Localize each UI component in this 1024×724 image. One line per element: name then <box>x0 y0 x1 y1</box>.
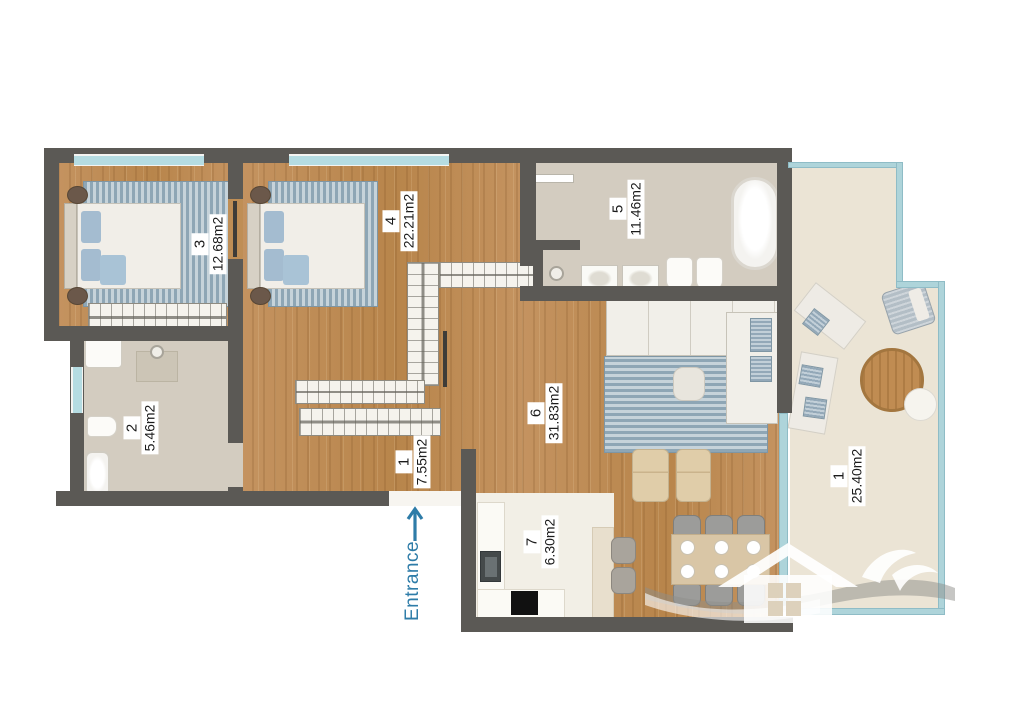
room-area: 7.55m2 <box>414 436 431 489</box>
sink-basin <box>485 557 497 577</box>
wall-bottom-kitchen <box>461 617 793 632</box>
wall-right-living <box>777 148 792 413</box>
floor-plan: 312.68m2 422.21m2 511.46m2 25.46m2 17.55… <box>0 0 1024 724</box>
bed-blanket <box>100 255 126 285</box>
nightstand <box>67 186 88 204</box>
entrance-label: Entrance <box>400 540 426 622</box>
entrance-arrow-icon <box>404 505 426 543</box>
coffee-table <box>673 367 705 401</box>
bed-bedroom-4 <box>247 203 365 289</box>
wall-bottom-left <box>56 491 389 506</box>
bed-pillow <box>81 211 101 243</box>
bed-headboard <box>64 203 77 289</box>
room-area: 22.21m2 <box>401 191 418 251</box>
wall-bath5-nook-h <box>533 240 580 250</box>
wardrobe <box>295 380 425 404</box>
floor-lamp <box>549 266 564 281</box>
plate <box>746 540 761 555</box>
balcony-glass-right-upper <box>896 162 903 288</box>
room-number: 6 <box>527 402 544 424</box>
plate <box>746 564 761 579</box>
stove <box>511 591 538 615</box>
room-area: 25.40m2 <box>849 446 866 506</box>
bed-bedroom-3 <box>64 203 181 289</box>
wall-left-lower <box>70 326 84 506</box>
sofa-cushion <box>798 364 823 388</box>
wall-kitchen-left <box>461 449 476 632</box>
wall-left-upper <box>44 148 59 341</box>
window-bathroom-2 <box>71 367 83 413</box>
bed-headboard <box>247 203 260 289</box>
balcony-glass-bottom <box>790 608 945 615</box>
door-leaf <box>443 331 447 387</box>
bathtub <box>731 177 779 270</box>
floor-balcony-upper <box>790 168 898 290</box>
wall-bath5-bottom <box>520 286 792 301</box>
armchair <box>676 449 711 502</box>
balcony-glass-top <box>788 162 902 168</box>
bar-stool <box>611 537 636 564</box>
entrance-opening <box>389 491 461 506</box>
room-number: 7 <box>523 531 540 553</box>
nightstand <box>67 287 88 305</box>
sofa-cushion <box>750 318 772 352</box>
window-bedroom-3 <box>74 154 204 166</box>
room-number: 1 <box>830 465 847 487</box>
bed-blanket <box>283 255 309 285</box>
sofa-cushion <box>750 356 772 382</box>
wardrobe <box>299 408 441 436</box>
dining-chair <box>673 584 701 606</box>
door-leaf <box>233 201 237 257</box>
plate <box>680 564 695 579</box>
plate <box>680 540 695 555</box>
room-number: 4 <box>382 210 399 232</box>
kitchen-sink <box>480 551 501 582</box>
room-area: 11.46m2 <box>628 179 645 238</box>
nightstand <box>250 186 271 204</box>
window-bedroom-4 <box>289 154 449 166</box>
plate <box>714 540 729 555</box>
floor-plan-page: { "floorplan": { "rooms": [ {"number": "… <box>0 0 1024 724</box>
room-area: 6.30m2 <box>542 516 559 569</box>
sofa-segment <box>788 351 839 434</box>
wardrobe <box>407 262 439 386</box>
room-area: 31.83m2 <box>546 383 563 443</box>
room-number: 2 <box>123 417 140 439</box>
sofa-cushion <box>803 397 828 420</box>
room-number: 5 <box>609 198 626 220</box>
bed-pillow <box>264 211 284 243</box>
bed-pillow <box>264 249 284 281</box>
balcony-glass-right-lower <box>938 281 945 615</box>
dining-table <box>671 534 770 585</box>
balcony-sliding-door <box>779 413 788 610</box>
room-area: 12.68m2 <box>210 214 227 274</box>
plate <box>714 564 729 579</box>
floor-lamp <box>150 345 164 359</box>
dining-chair <box>737 584 765 606</box>
nightstand <box>250 287 271 305</box>
armchair <box>632 449 669 502</box>
room-area: 5.46m2 <box>142 402 159 455</box>
shelf <box>531 174 574 183</box>
door-opening-bathroom2 <box>228 443 243 487</box>
toilet <box>87 416 117 437</box>
side-table <box>904 388 937 421</box>
bar-stool <box>611 567 636 594</box>
bed-pillow <box>81 249 101 281</box>
room-number: 3 <box>191 233 208 255</box>
room-number: 1 <box>395 451 412 473</box>
dining-chair <box>705 584 733 606</box>
chair-armrest <box>908 287 930 321</box>
